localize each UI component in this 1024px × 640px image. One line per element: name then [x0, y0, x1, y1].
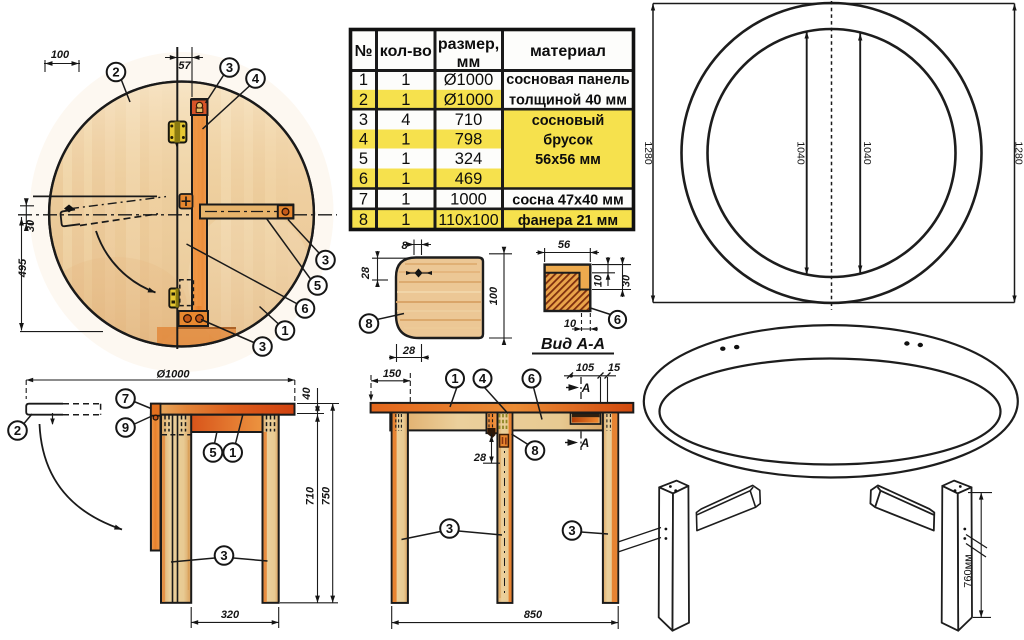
- svg-text:110х100: 110х100: [438, 212, 498, 229]
- svg-text:сосна 47х40 мм: сосна 47х40 мм: [512, 193, 623, 209]
- svg-text:1: 1: [229, 445, 236, 460]
- svg-text:4: 4: [252, 71, 260, 86]
- svg-text:9: 9: [122, 420, 129, 435]
- svg-text:3: 3: [259, 339, 266, 354]
- svg-text:30: 30: [25, 219, 37, 232]
- svg-text:3: 3: [226, 60, 233, 75]
- svg-text:6: 6: [614, 312, 621, 327]
- svg-text:Вид А-А: Вид А-А: [541, 336, 605, 353]
- svg-text:Ø1000: Ø1000: [444, 71, 494, 89]
- svg-text:6: 6: [359, 170, 368, 188]
- svg-text:1: 1: [281, 323, 288, 338]
- svg-text:3: 3: [446, 521, 453, 536]
- svg-text:5: 5: [314, 278, 321, 293]
- svg-text:сосновая панель: сосновая панель: [506, 72, 630, 88]
- svg-text:Ø1000: Ø1000: [444, 91, 494, 109]
- svg-text:1000: 1000: [450, 191, 487, 209]
- svg-text:размер,: размер,: [438, 36, 499, 53]
- svg-text:3: 3: [220, 548, 227, 563]
- svg-text:кол-во: кол-во: [380, 43, 432, 60]
- svg-text:5: 5: [359, 150, 368, 168]
- svg-text:30: 30: [621, 274, 633, 287]
- svg-text:105: 105: [576, 362, 595, 374]
- svg-text:фанера 21 мм: фанера 21 мм: [518, 213, 618, 229]
- svg-text:710: 710: [455, 111, 483, 129]
- svg-text:28: 28: [402, 345, 416, 357]
- svg-text:3: 3: [322, 253, 329, 268]
- svg-text:№: №: [355, 43, 373, 60]
- svg-text:100: 100: [51, 49, 70, 61]
- svg-text:1040: 1040: [861, 141, 873, 165]
- svg-text:5: 5: [209, 445, 216, 460]
- svg-text:1: 1: [359, 71, 368, 89]
- svg-text:7: 7: [122, 391, 129, 406]
- svg-text:1: 1: [401, 170, 410, 188]
- svg-text:798: 798: [455, 131, 483, 149]
- svg-text:сосновый: сосновый: [532, 113, 605, 129]
- svg-text:8: 8: [359, 211, 368, 229]
- svg-text:1: 1: [401, 150, 410, 168]
- svg-text:57: 57: [178, 60, 191, 72]
- svg-text:1: 1: [401, 91, 410, 109]
- svg-text:150: 150: [383, 368, 402, 380]
- svg-text:4: 4: [359, 131, 368, 149]
- svg-text:56: 56: [558, 239, 571, 251]
- svg-text:710: 710: [305, 486, 317, 505]
- svg-text:мм: мм: [457, 54, 481, 71]
- svg-text:8: 8: [365, 316, 372, 331]
- svg-text:56х56 мм: 56х56 мм: [535, 152, 601, 168]
- svg-text:28: 28: [360, 266, 372, 280]
- svg-text:850: 850: [524, 609, 543, 621]
- svg-text:760мм: 760мм: [963, 554, 975, 587]
- svg-text:4: 4: [479, 371, 487, 386]
- svg-text:28: 28: [473, 452, 487, 464]
- svg-text:320: 320: [221, 609, 240, 621]
- svg-text:10: 10: [564, 318, 577, 330]
- svg-text:4: 4: [401, 111, 410, 129]
- svg-text:10: 10: [593, 274, 605, 287]
- svg-text:3: 3: [568, 523, 575, 538]
- svg-text:750: 750: [321, 486, 333, 505]
- svg-text:495: 495: [17, 258, 29, 278]
- svg-text:1280: 1280: [642, 141, 654, 165]
- svg-text:6: 6: [301, 301, 308, 316]
- svg-text:1: 1: [401, 131, 410, 149]
- svg-text:А: А: [580, 436, 590, 450]
- svg-text:1: 1: [401, 191, 410, 209]
- svg-text:толщиной 40 мм: толщиной 40 мм: [509, 93, 627, 109]
- svg-text:1280: 1280: [1013, 141, 1024, 165]
- svg-text:3: 3: [359, 111, 368, 129]
- svg-text:1: 1: [401, 71, 410, 89]
- svg-text:1040: 1040: [795, 141, 807, 165]
- svg-text:324: 324: [455, 150, 483, 168]
- svg-text:брусок: брусок: [543, 133, 593, 149]
- svg-text:2: 2: [359, 91, 368, 109]
- svg-text:материал: материал: [530, 43, 606, 60]
- svg-text:15: 15: [608, 362, 621, 374]
- svg-text:А: А: [581, 381, 591, 395]
- svg-text:1: 1: [401, 211, 410, 229]
- svg-text:2: 2: [14, 423, 21, 438]
- svg-text:8: 8: [531, 443, 538, 458]
- svg-text:469: 469: [455, 170, 483, 188]
- svg-text:8: 8: [401, 240, 408, 252]
- svg-text:7: 7: [359, 191, 368, 209]
- svg-text:6: 6: [528, 371, 535, 386]
- svg-text:100: 100: [488, 286, 500, 305]
- svg-text:2: 2: [112, 65, 119, 80]
- svg-text:1: 1: [451, 371, 458, 386]
- svg-text:40: 40: [301, 387, 313, 401]
- svg-text:Ø1000: Ø1000: [156, 369, 190, 381]
